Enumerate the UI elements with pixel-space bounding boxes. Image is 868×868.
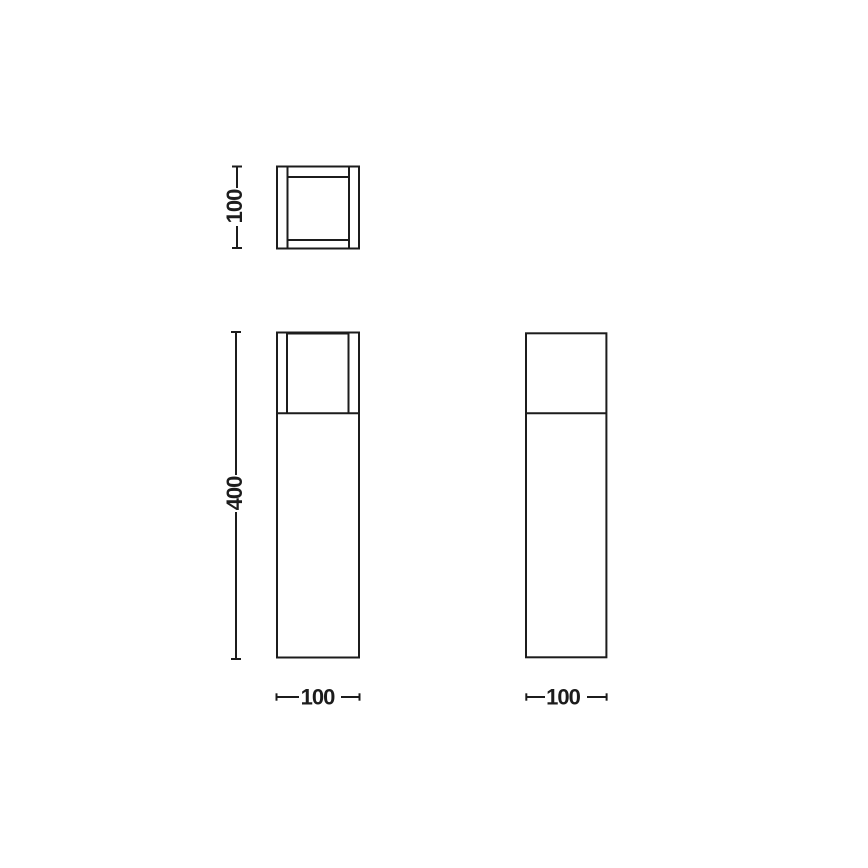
svg-text:100: 100 bbox=[546, 685, 580, 710]
svg-text:100: 100 bbox=[222, 189, 247, 223]
svg-text:100: 100 bbox=[301, 685, 335, 710]
svg-text:400: 400 bbox=[222, 476, 247, 510]
